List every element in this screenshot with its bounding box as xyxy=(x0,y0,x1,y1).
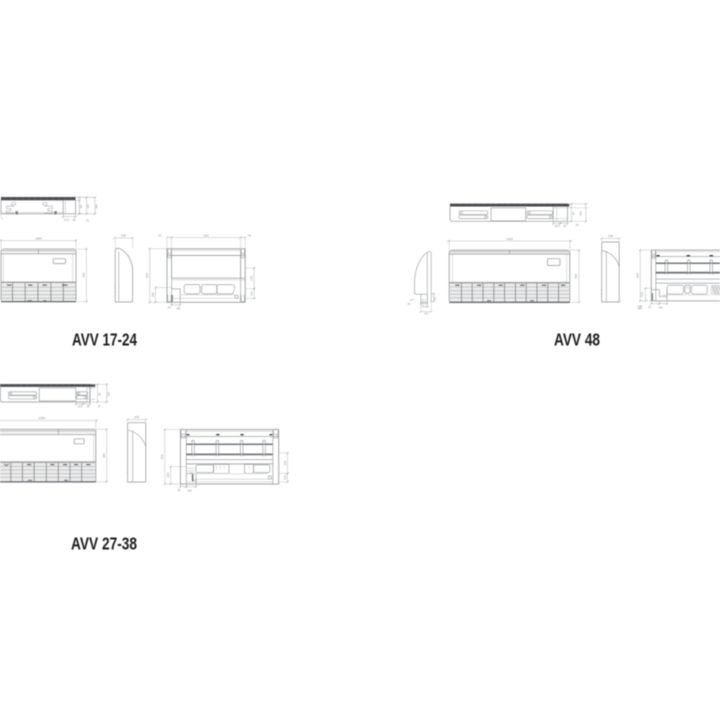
svg-text:238: 238 xyxy=(121,234,126,238)
svg-text:240: 240 xyxy=(134,415,139,419)
svg-text:60: 60 xyxy=(159,233,162,237)
svg-text:60: 60 xyxy=(79,205,83,208)
svg-text:60: 60 xyxy=(178,489,181,492)
svg-text:660: 660 xyxy=(574,273,578,278)
svg-text:238: 238 xyxy=(608,234,613,238)
svg-text:100: 100 xyxy=(187,490,192,493)
svg-text:60: 60 xyxy=(97,392,101,395)
svg-text:680: 680 xyxy=(102,453,106,458)
svg-text:100: 100 xyxy=(658,306,663,309)
svg-text:4: 4 xyxy=(88,220,90,223)
svg-text:235: 235 xyxy=(283,460,287,465)
svg-text:AVV 48: AVV 48 xyxy=(554,330,600,350)
svg-text:35: 35 xyxy=(563,225,566,228)
svg-text:AVV 27-38: AVV 27-38 xyxy=(71,533,137,553)
svg-text:600: 600 xyxy=(145,273,149,278)
svg-text:910: 910 xyxy=(204,233,209,237)
svg-text:AVV 17-24: AVV 17-24 xyxy=(72,330,137,350)
svg-text:60: 60 xyxy=(248,233,251,237)
svg-text:34,5: 34,5 xyxy=(555,225,560,228)
svg-text:1285: 1285 xyxy=(38,416,45,420)
svg-text:34,5: 34,5 xyxy=(78,406,83,409)
svg-text:134: 134 xyxy=(424,312,429,315)
svg-text:35: 35 xyxy=(73,218,76,222)
svg-text:1065: 1065 xyxy=(35,236,42,240)
svg-text:60: 60 xyxy=(571,212,575,215)
svg-text:110: 110 xyxy=(283,475,287,480)
svg-text:4: 4 xyxy=(1,218,3,221)
svg-text:325: 325 xyxy=(579,211,583,216)
svg-text:165: 165 xyxy=(95,204,99,209)
svg-text:15: 15 xyxy=(98,405,101,408)
svg-text:325: 325 xyxy=(106,391,110,396)
svg-text:110: 110 xyxy=(250,291,254,296)
svg-text:95: 95 xyxy=(435,296,437,299)
svg-text:150: 150 xyxy=(166,473,170,478)
svg-text:45: 45 xyxy=(407,303,410,306)
svg-text:27,5: 27,5 xyxy=(64,218,70,222)
svg-text:35: 35 xyxy=(168,306,171,309)
svg-text:100: 100 xyxy=(176,307,181,310)
svg-text:600: 600 xyxy=(635,273,639,278)
svg-text:1440: 1440 xyxy=(506,237,513,241)
svg-text:150: 150 xyxy=(640,292,644,297)
svg-text:600: 600 xyxy=(160,454,164,459)
svg-text:35: 35 xyxy=(648,306,651,309)
svg-text:135: 135 xyxy=(86,204,90,209)
svg-text:660: 660 xyxy=(82,272,86,277)
svg-text:15: 15 xyxy=(576,224,579,227)
svg-text:235: 235 xyxy=(250,276,254,281)
svg-text:175-185: 175-185 xyxy=(420,306,429,309)
svg-text:150: 150 xyxy=(151,292,155,297)
svg-text:35: 35 xyxy=(87,406,90,409)
